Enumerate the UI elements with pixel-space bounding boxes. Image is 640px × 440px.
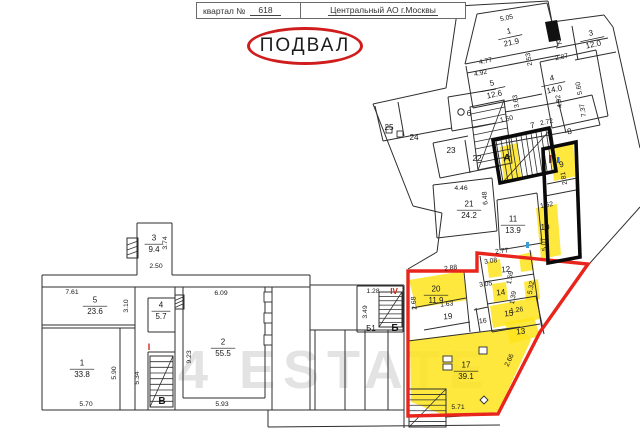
room-label: 19 xyxy=(443,312,453,322)
room-label: 10 xyxy=(540,223,550,232)
dimension-text: 2.68 xyxy=(410,296,418,310)
fixture xyxy=(264,335,272,345)
room-label: А xyxy=(503,153,510,164)
hatch-line xyxy=(127,246,138,250)
room-number: 4 xyxy=(159,301,164,310)
room-area: 13.9 xyxy=(505,226,521,235)
dimension-text: 1.28 xyxy=(366,288,379,295)
color-mark xyxy=(526,242,529,248)
dimension-text: 4.92 xyxy=(473,69,488,79)
room-number: 3 xyxy=(588,28,595,38)
wall xyxy=(413,206,442,213)
wall xyxy=(545,190,576,196)
wall xyxy=(590,207,640,263)
hatch-line xyxy=(127,241,138,245)
wall xyxy=(552,15,604,22)
room-label: 13 xyxy=(516,327,526,337)
dimension-text: 2.87 xyxy=(554,53,569,63)
dimension-text: 3.74 xyxy=(162,236,169,249)
room-number: 5 xyxy=(489,78,496,88)
room-number: 5 xyxy=(93,296,98,305)
wall xyxy=(437,231,497,238)
wall xyxy=(613,27,640,148)
room-number: 11 xyxy=(509,215,518,224)
fixture xyxy=(264,313,272,323)
wall xyxy=(433,143,440,178)
dimension-text: 2.53 xyxy=(525,52,534,66)
hatch-line xyxy=(127,251,138,255)
stair-tread xyxy=(531,133,537,174)
room-number: 1 xyxy=(80,359,85,368)
dimension-text: 4.46 xyxy=(454,185,467,192)
wall xyxy=(604,15,613,27)
district-text: Центральный АО г.Москвы xyxy=(328,5,438,16)
room-label: IV xyxy=(390,287,398,296)
wall xyxy=(448,97,452,131)
wall xyxy=(473,94,542,108)
room-label: 22 xyxy=(472,154,482,163)
room-area: 21.9 xyxy=(503,36,521,48)
wall xyxy=(424,322,470,330)
room-label: 6 xyxy=(467,109,472,118)
room-number: 3 xyxy=(152,234,157,243)
wall xyxy=(497,200,500,250)
room-label: 25 xyxy=(384,123,394,132)
room-label: 7 xyxy=(529,121,536,131)
wall xyxy=(375,106,383,141)
fixture-circle xyxy=(458,109,464,115)
room-number: 20 xyxy=(432,285,441,294)
district-cell: Центральный АО г.Москвы xyxy=(301,3,465,18)
dimension-text: 3.49 xyxy=(362,305,369,318)
stair-tread xyxy=(474,128,508,135)
room-area: 9.4 xyxy=(148,245,160,254)
stair-tread xyxy=(536,132,542,173)
dimension-text: 3.05 xyxy=(479,280,493,289)
dimension-text: 5.05 xyxy=(499,14,514,24)
dimension-text: 7.37 xyxy=(579,103,588,117)
room-label: В xyxy=(158,396,165,407)
fixture xyxy=(264,292,272,302)
quarter-number: 618 xyxy=(250,5,280,16)
room-number: 1 xyxy=(506,26,513,36)
dimension-text: 2.50 xyxy=(149,263,162,270)
floor-plan-page: 4 ESTATE39.4523.645.7133.8255.5121.9312.… xyxy=(0,0,640,440)
room-area: 5.7 xyxy=(155,312,167,321)
wall xyxy=(492,178,497,231)
room-label: 23 xyxy=(446,146,456,155)
dimension-text: 5.34 xyxy=(134,371,141,384)
wall xyxy=(497,193,537,200)
wall xyxy=(433,178,492,185)
fixture xyxy=(397,131,403,137)
dimension-text: 6.48 xyxy=(481,191,489,205)
room-label: Б1 xyxy=(366,324,376,333)
dimension-text: 4.77 xyxy=(478,57,493,67)
title-block-table: квартал № 618 Центральный АО г.Москвы xyxy=(196,2,466,19)
wall xyxy=(465,14,477,64)
room-area: 12.6 xyxy=(486,88,504,100)
dimension-text: 1.59 xyxy=(506,270,515,284)
dimension-text: 4.92 xyxy=(555,94,564,108)
room-label: I xyxy=(148,342,151,352)
room-number: 4 xyxy=(549,73,556,83)
fixture xyxy=(479,347,487,354)
room-area: 55.5 xyxy=(215,349,231,358)
room-area: 39.1 xyxy=(458,372,474,381)
room-label: Б xyxy=(391,323,398,334)
dimension-text: 5.60 xyxy=(575,81,584,95)
wall xyxy=(373,104,413,206)
wall xyxy=(592,95,600,125)
quarter-cell: квартал № 618 xyxy=(197,3,301,18)
dimension-text: 1.63 xyxy=(440,300,454,308)
room-label: 8 xyxy=(566,127,573,137)
dimension-text: 2.77 xyxy=(495,247,509,255)
wall xyxy=(560,95,592,102)
dimension-text: 6.09 xyxy=(214,290,227,297)
room-label: 2 xyxy=(556,37,563,47)
dimension-text: 7.61 xyxy=(65,289,78,296)
room-area: 33.8 xyxy=(74,370,90,379)
dimension-text: 1.50 xyxy=(499,115,514,125)
wall xyxy=(437,213,442,252)
quarter-label: квартал № xyxy=(203,6,245,16)
room-label: 24 xyxy=(409,133,419,142)
stair-diagonal xyxy=(478,100,504,170)
room-area: 23.6 xyxy=(87,307,103,316)
dimension-text: 3.63 xyxy=(512,94,521,108)
wall xyxy=(268,425,500,427)
dimension-text: 5.93 xyxy=(215,401,228,408)
dimension-text: 5.71 xyxy=(451,404,464,411)
basement-title: ПОДВАЛ xyxy=(260,35,351,57)
dimension-text: 9.23 xyxy=(186,350,193,363)
wall xyxy=(433,136,468,143)
dimension-text: 5.90 xyxy=(111,366,118,379)
room-label: 16 xyxy=(479,318,488,326)
fixture xyxy=(443,364,452,370)
dimension-text: 3.10 xyxy=(123,299,130,312)
dimension-text: 5.70 xyxy=(79,401,92,408)
fixture xyxy=(443,356,452,362)
room-area: 12.0 xyxy=(585,38,603,50)
room-area: 24.2 xyxy=(461,211,477,220)
room-number: 17 xyxy=(462,361,471,370)
basement-title-circle: ПОДВАЛ xyxy=(247,27,363,65)
room-label: 14 xyxy=(496,288,506,298)
room-area: 14.0 xyxy=(546,83,564,95)
floor-plan-canvas: 4 ESTATE39.4523.645.7133.8255.5121.9312.… xyxy=(0,0,640,440)
wall xyxy=(596,50,608,116)
wall xyxy=(408,252,437,269)
room-number: 21 xyxy=(465,200,474,209)
room-number: 2 xyxy=(221,338,226,347)
wall xyxy=(373,88,446,104)
wall xyxy=(465,140,470,173)
